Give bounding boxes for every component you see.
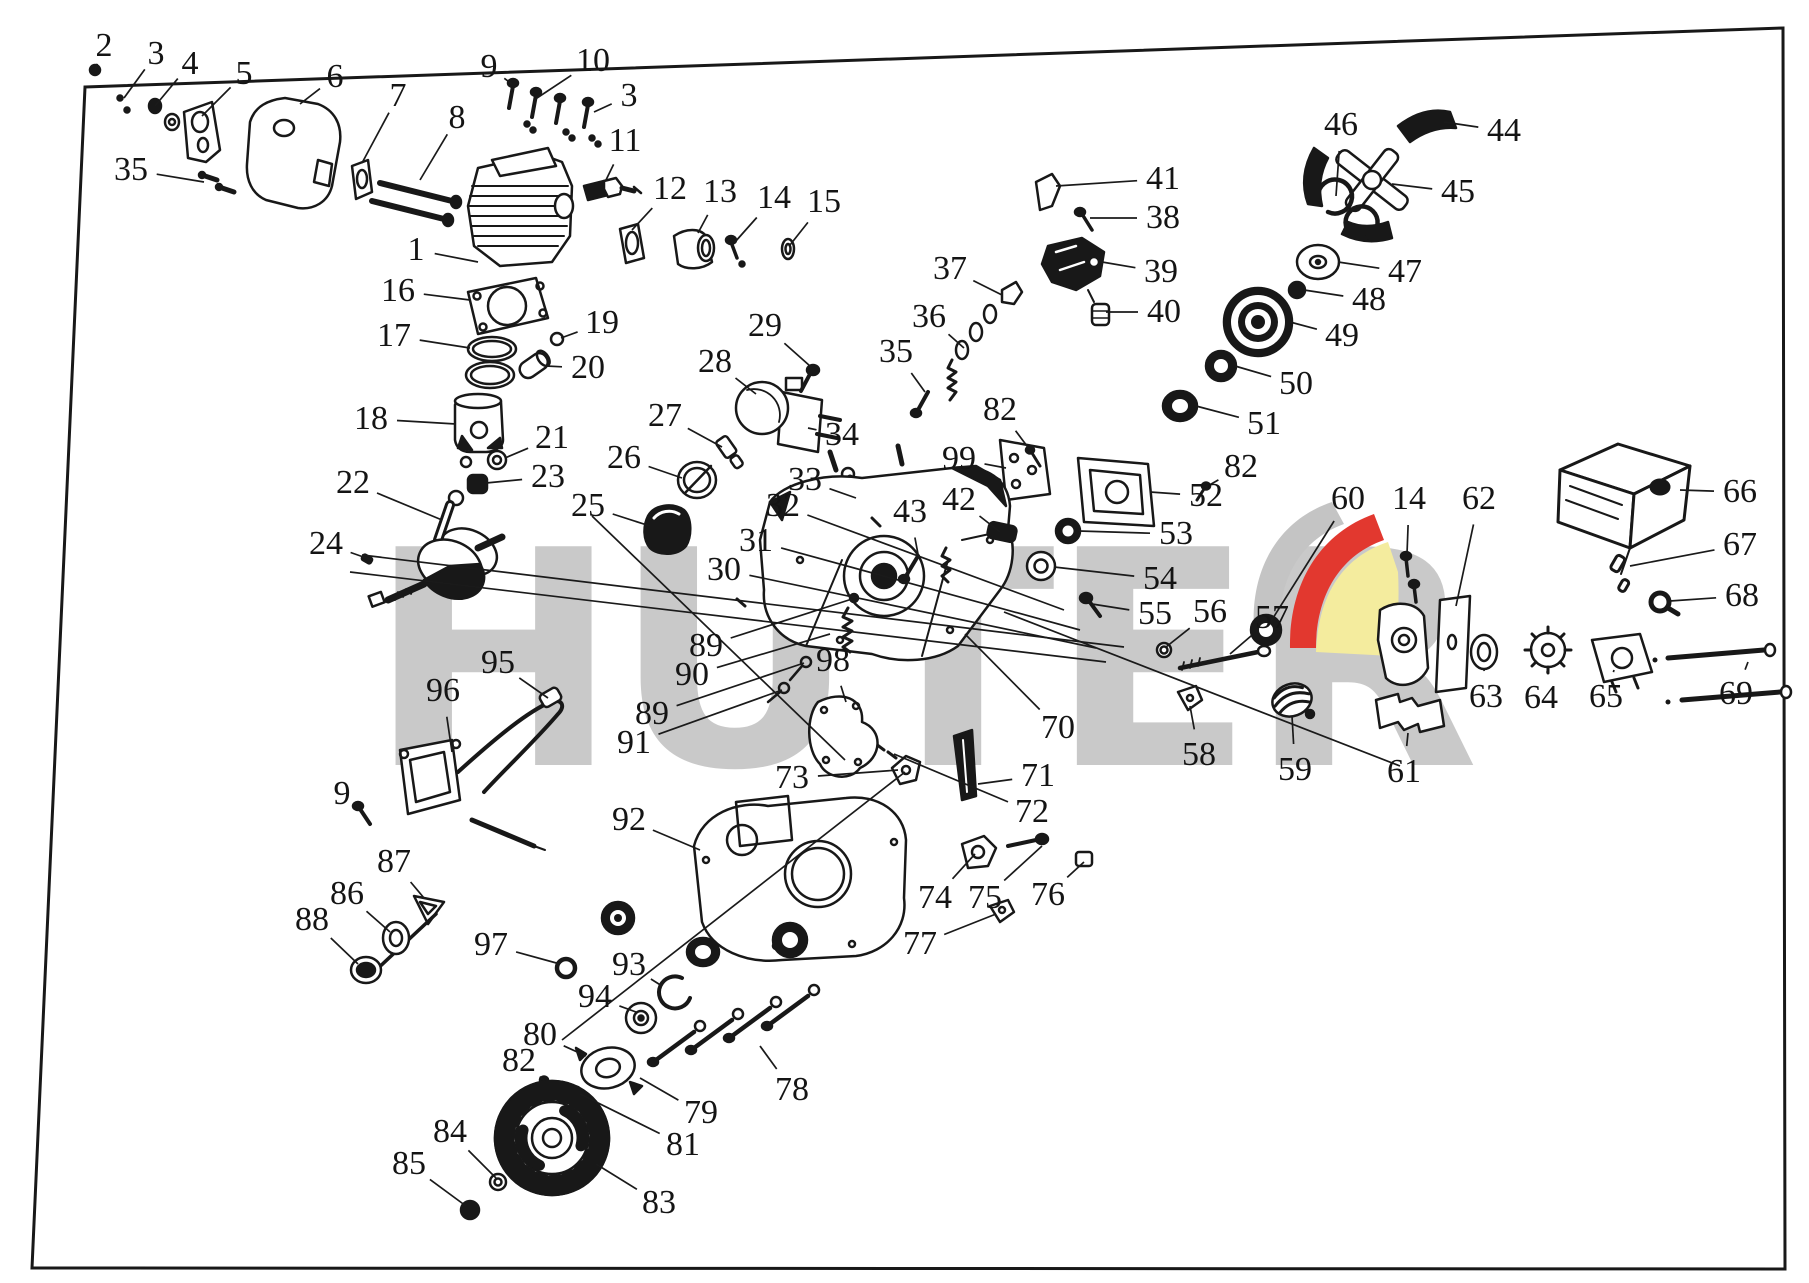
part-label-74: 74 bbox=[918, 881, 952, 915]
part-label-71: 71 bbox=[1021, 759, 1055, 793]
part-label-86: 86 bbox=[330, 877, 364, 911]
part-label-34: 34 bbox=[825, 418, 859, 452]
part-label-81: 81 bbox=[666, 1128, 700, 1162]
part-label-19: 19 bbox=[585, 306, 619, 340]
part-label-26: 26 bbox=[607, 441, 641, 475]
part-label-58: 58 bbox=[1182, 738, 1216, 772]
part-label-99: 99 bbox=[942, 442, 976, 476]
part-label-52: 52 bbox=[1189, 479, 1223, 513]
part-label-44: 44 bbox=[1487, 114, 1521, 148]
part-label-83: 83 bbox=[642, 1186, 676, 1220]
part-label-69: 69 bbox=[1719, 677, 1753, 711]
part-label-51: 51 bbox=[1247, 407, 1281, 441]
part-label-70: 70 bbox=[1041, 711, 1075, 745]
part-label-39: 39 bbox=[1144, 255, 1178, 289]
part-label-54: 54 bbox=[1143, 562, 1177, 596]
part-label-45: 45 bbox=[1441, 175, 1475, 209]
part-label-2: 2 bbox=[96, 29, 113, 63]
part-label-59: 59 bbox=[1278, 753, 1312, 787]
part-label-25: 25 bbox=[571, 489, 605, 523]
part-label-79: 79 bbox=[684, 1096, 718, 1130]
part-label-98: 98 bbox=[816, 644, 850, 678]
part-label-32: 32 bbox=[766, 489, 800, 523]
part-label-22: 22 bbox=[336, 466, 370, 500]
part-label-90: 90 bbox=[675, 658, 709, 692]
part-label-37: 37 bbox=[933, 252, 967, 286]
part-label-76: 76 bbox=[1031, 878, 1065, 912]
part-label-3: 3 bbox=[148, 37, 165, 71]
part-label-82: 82 bbox=[983, 393, 1017, 427]
part-label-78: 78 bbox=[775, 1073, 809, 1107]
part-label-73: 73 bbox=[775, 761, 809, 795]
part-label-68: 68 bbox=[1725, 579, 1759, 613]
part-label-14: 14 bbox=[1392, 482, 1426, 516]
part-label-56: 56 bbox=[1193, 595, 1227, 629]
part-label-49: 49 bbox=[1325, 319, 1359, 353]
part-label-67: 67 bbox=[1723, 528, 1757, 562]
parts-diagram-page: HUTER bbox=[0, 0, 1809, 1283]
part-label-4: 4 bbox=[182, 47, 199, 81]
part-label-91: 91 bbox=[617, 726, 651, 760]
part-label-3: 3 bbox=[621, 79, 638, 113]
part-label-10: 10 bbox=[576, 44, 610, 78]
part-label-63: 63 bbox=[1469, 680, 1503, 714]
part-label-30: 30 bbox=[707, 553, 741, 587]
part-label-27: 27 bbox=[648, 399, 682, 433]
part-label-8: 8 bbox=[449, 101, 466, 135]
part-label-20: 20 bbox=[571, 351, 605, 385]
part-label-94: 94 bbox=[578, 980, 612, 1014]
part-label-64: 64 bbox=[1524, 681, 1558, 715]
part-label-62: 62 bbox=[1462, 482, 1496, 516]
part-label-14: 14 bbox=[757, 181, 791, 215]
part-label-16: 16 bbox=[381, 274, 415, 308]
part-label-47: 47 bbox=[1388, 255, 1422, 289]
part-label-28: 28 bbox=[698, 345, 732, 379]
part-label-55: 55 bbox=[1138, 597, 1172, 631]
part-label-6: 6 bbox=[327, 60, 344, 94]
part-label-77: 77 bbox=[903, 927, 937, 961]
part-label-92: 92 bbox=[612, 803, 646, 837]
part-label-82: 82 bbox=[502, 1044, 536, 1078]
part-label-29: 29 bbox=[748, 309, 782, 343]
part-label-17: 17 bbox=[377, 319, 411, 353]
part-label-12: 12 bbox=[653, 172, 687, 206]
part-label-13: 13 bbox=[703, 175, 737, 209]
part-label-82: 82 bbox=[1224, 450, 1258, 484]
part-number-labels: 2345678910311351213141511617192018212322… bbox=[0, 0, 1809, 1283]
part-label-60: 60 bbox=[1331, 482, 1365, 516]
part-label-23: 23 bbox=[531, 460, 565, 494]
part-label-31: 31 bbox=[739, 524, 773, 558]
part-label-35: 35 bbox=[879, 335, 913, 369]
part-label-72: 72 bbox=[1015, 795, 1049, 829]
part-label-75: 75 bbox=[968, 881, 1002, 915]
part-label-53: 53 bbox=[1159, 517, 1193, 551]
part-label-18: 18 bbox=[354, 402, 388, 436]
part-label-41: 41 bbox=[1146, 162, 1180, 196]
part-label-61: 61 bbox=[1387, 755, 1421, 789]
part-label-15: 15 bbox=[807, 185, 841, 219]
part-label-43: 43 bbox=[893, 495, 927, 529]
part-label-66: 66 bbox=[1723, 475, 1757, 509]
part-label-38: 38 bbox=[1146, 201, 1180, 235]
part-label-42: 42 bbox=[942, 483, 976, 517]
part-label-11: 11 bbox=[609, 124, 642, 158]
part-label-97: 97 bbox=[474, 928, 508, 962]
part-label-40: 40 bbox=[1147, 295, 1181, 329]
part-label-93: 93 bbox=[612, 948, 646, 982]
part-label-7: 7 bbox=[390, 79, 407, 113]
part-label-50: 50 bbox=[1279, 367, 1313, 401]
part-label-1: 1 bbox=[408, 233, 425, 267]
part-label-21: 21 bbox=[535, 421, 569, 455]
part-label-95: 95 bbox=[481, 646, 515, 680]
part-label-65: 65 bbox=[1589, 680, 1623, 714]
part-label-48: 48 bbox=[1352, 283, 1386, 317]
part-label-9: 9 bbox=[334, 777, 351, 811]
part-label-46: 46 bbox=[1324, 108, 1358, 142]
part-label-35: 35 bbox=[114, 153, 148, 187]
part-label-85: 85 bbox=[392, 1147, 426, 1181]
part-label-87: 87 bbox=[377, 845, 411, 879]
part-label-24: 24 bbox=[309, 527, 343, 561]
part-label-57: 57 bbox=[1255, 601, 1289, 635]
part-label-96: 96 bbox=[426, 674, 460, 708]
part-label-5: 5 bbox=[236, 57, 253, 91]
part-label-9: 9 bbox=[481, 50, 498, 84]
part-label-84: 84 bbox=[433, 1115, 467, 1149]
part-label-88: 88 bbox=[295, 903, 329, 937]
part-label-36: 36 bbox=[912, 300, 946, 334]
